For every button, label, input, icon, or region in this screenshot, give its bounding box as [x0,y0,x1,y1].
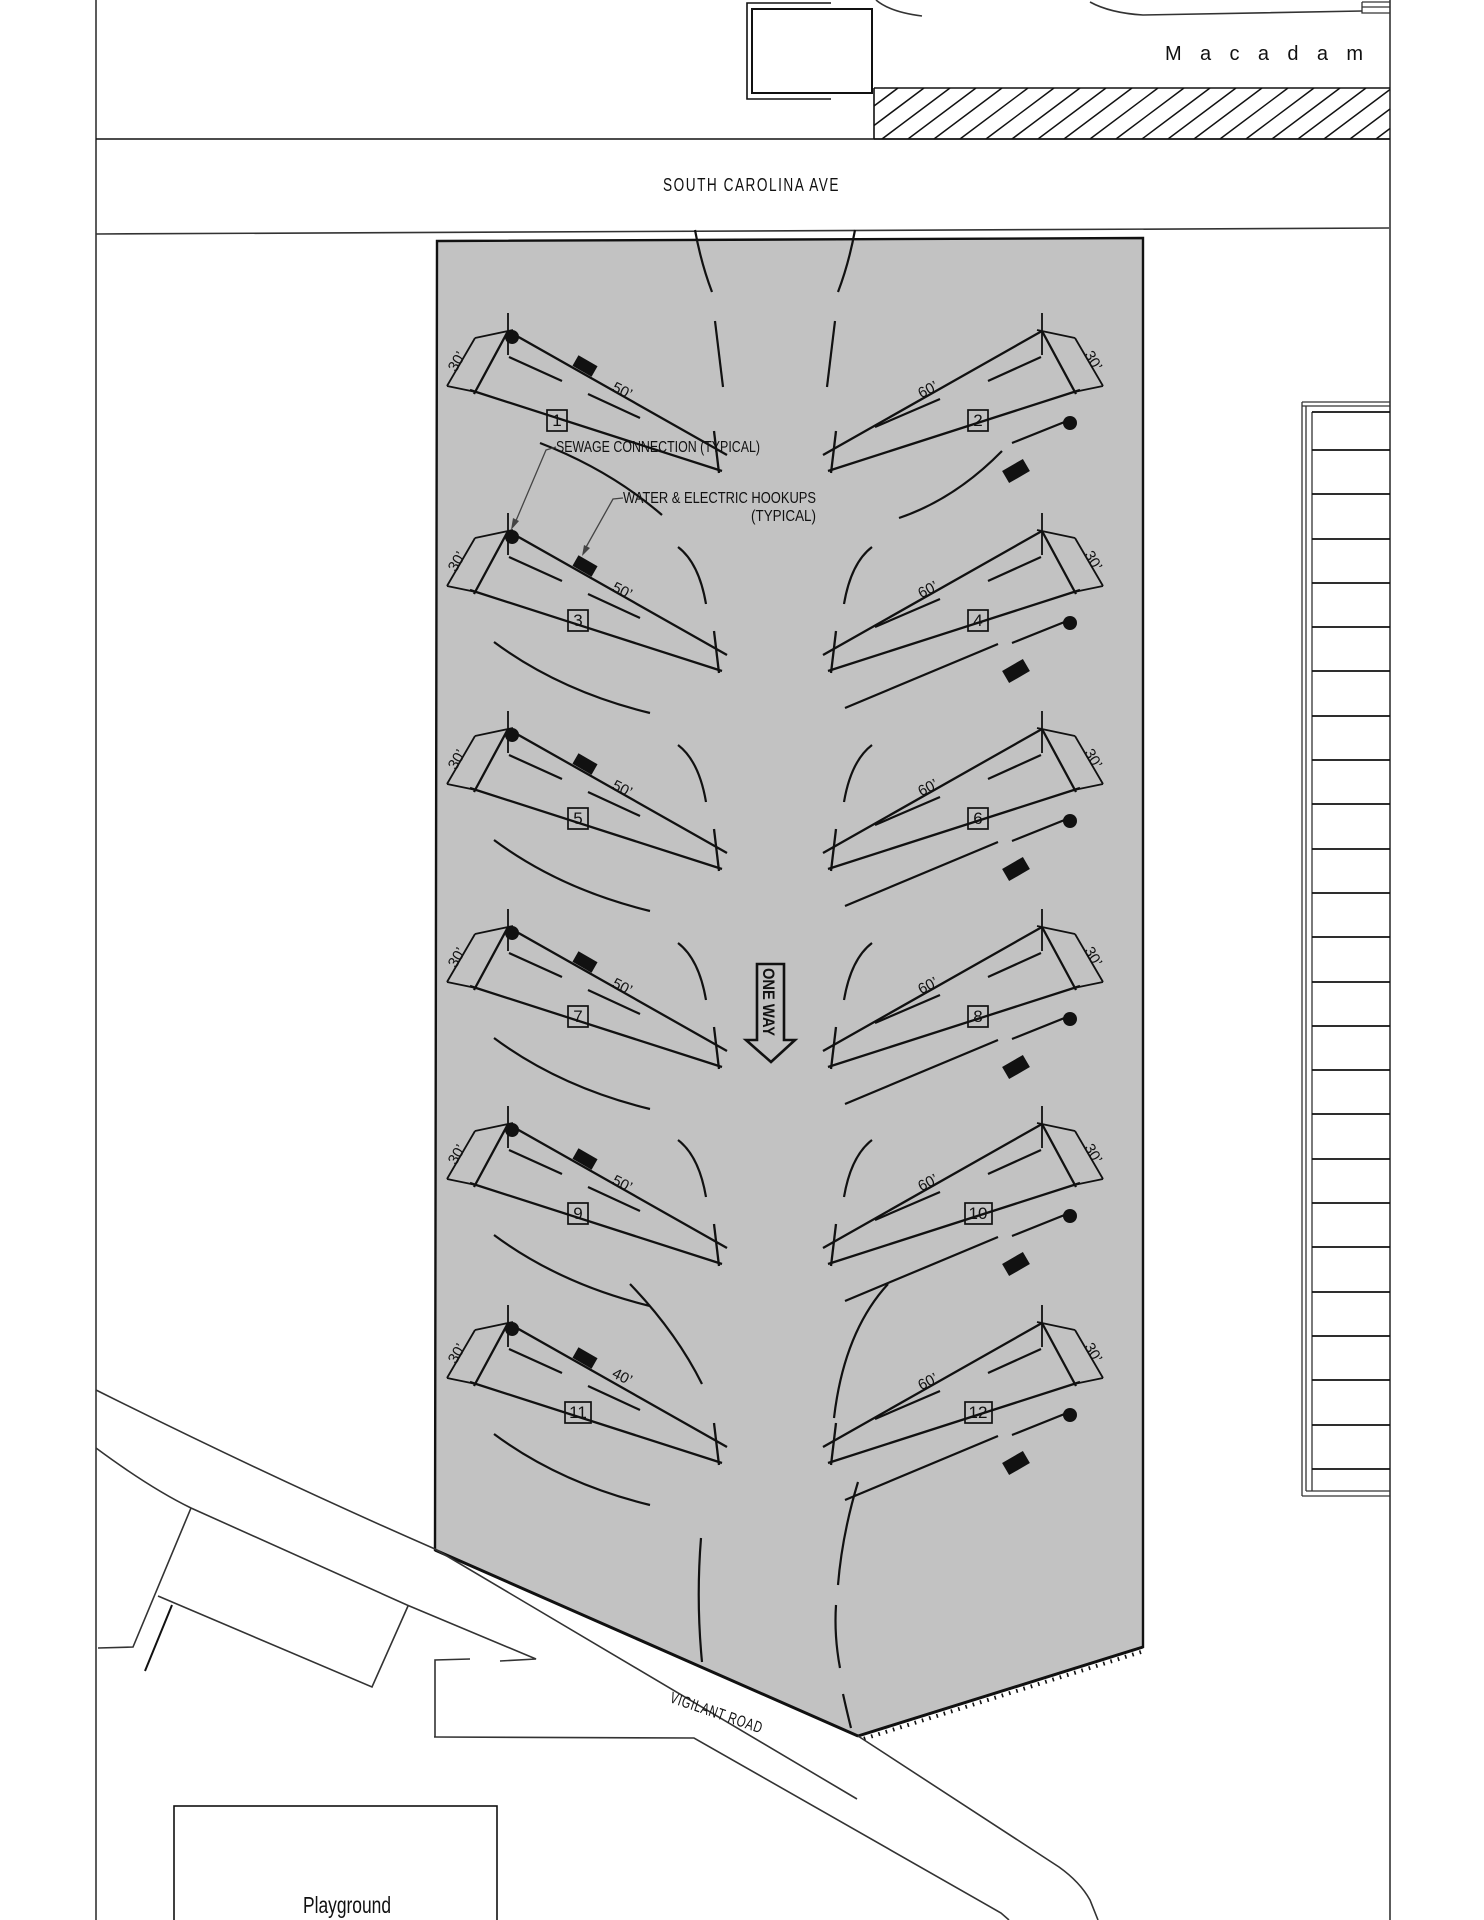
svg-text:6: 6 [973,809,982,828]
svg-text:7: 7 [573,1007,582,1026]
svg-text:2: 2 [973,411,982,430]
svg-text:WATER & ELECTRIC HOOKUPS: WATER & ELECTRIC HOOKUPS [623,490,816,507]
svg-text:ONE WAY: ONE WAY [759,968,778,1037]
svg-text:9: 9 [573,1204,582,1223]
svg-text:(TYPICAL): (TYPICAL) [751,508,816,525]
svg-text:Playground: Playground [303,1892,391,1918]
svg-text:3: 3 [573,611,582,630]
svg-text:5: 5 [573,809,582,828]
svg-text:8: 8 [973,1007,982,1026]
svg-text:11: 11 [569,1403,587,1422]
svg-text:12: 12 [969,1403,988,1422]
svg-text:4: 4 [973,611,982,630]
svg-text:10: 10 [969,1204,988,1223]
svg-text:1: 1 [552,411,561,430]
svg-text:SOUTH CAROLINA AVE: SOUTH CAROLINA AVE [663,175,840,195]
svg-text:SEWAGE CONNECTION (TYPICAL): SEWAGE CONNECTION (TYPICAL) [556,439,760,456]
